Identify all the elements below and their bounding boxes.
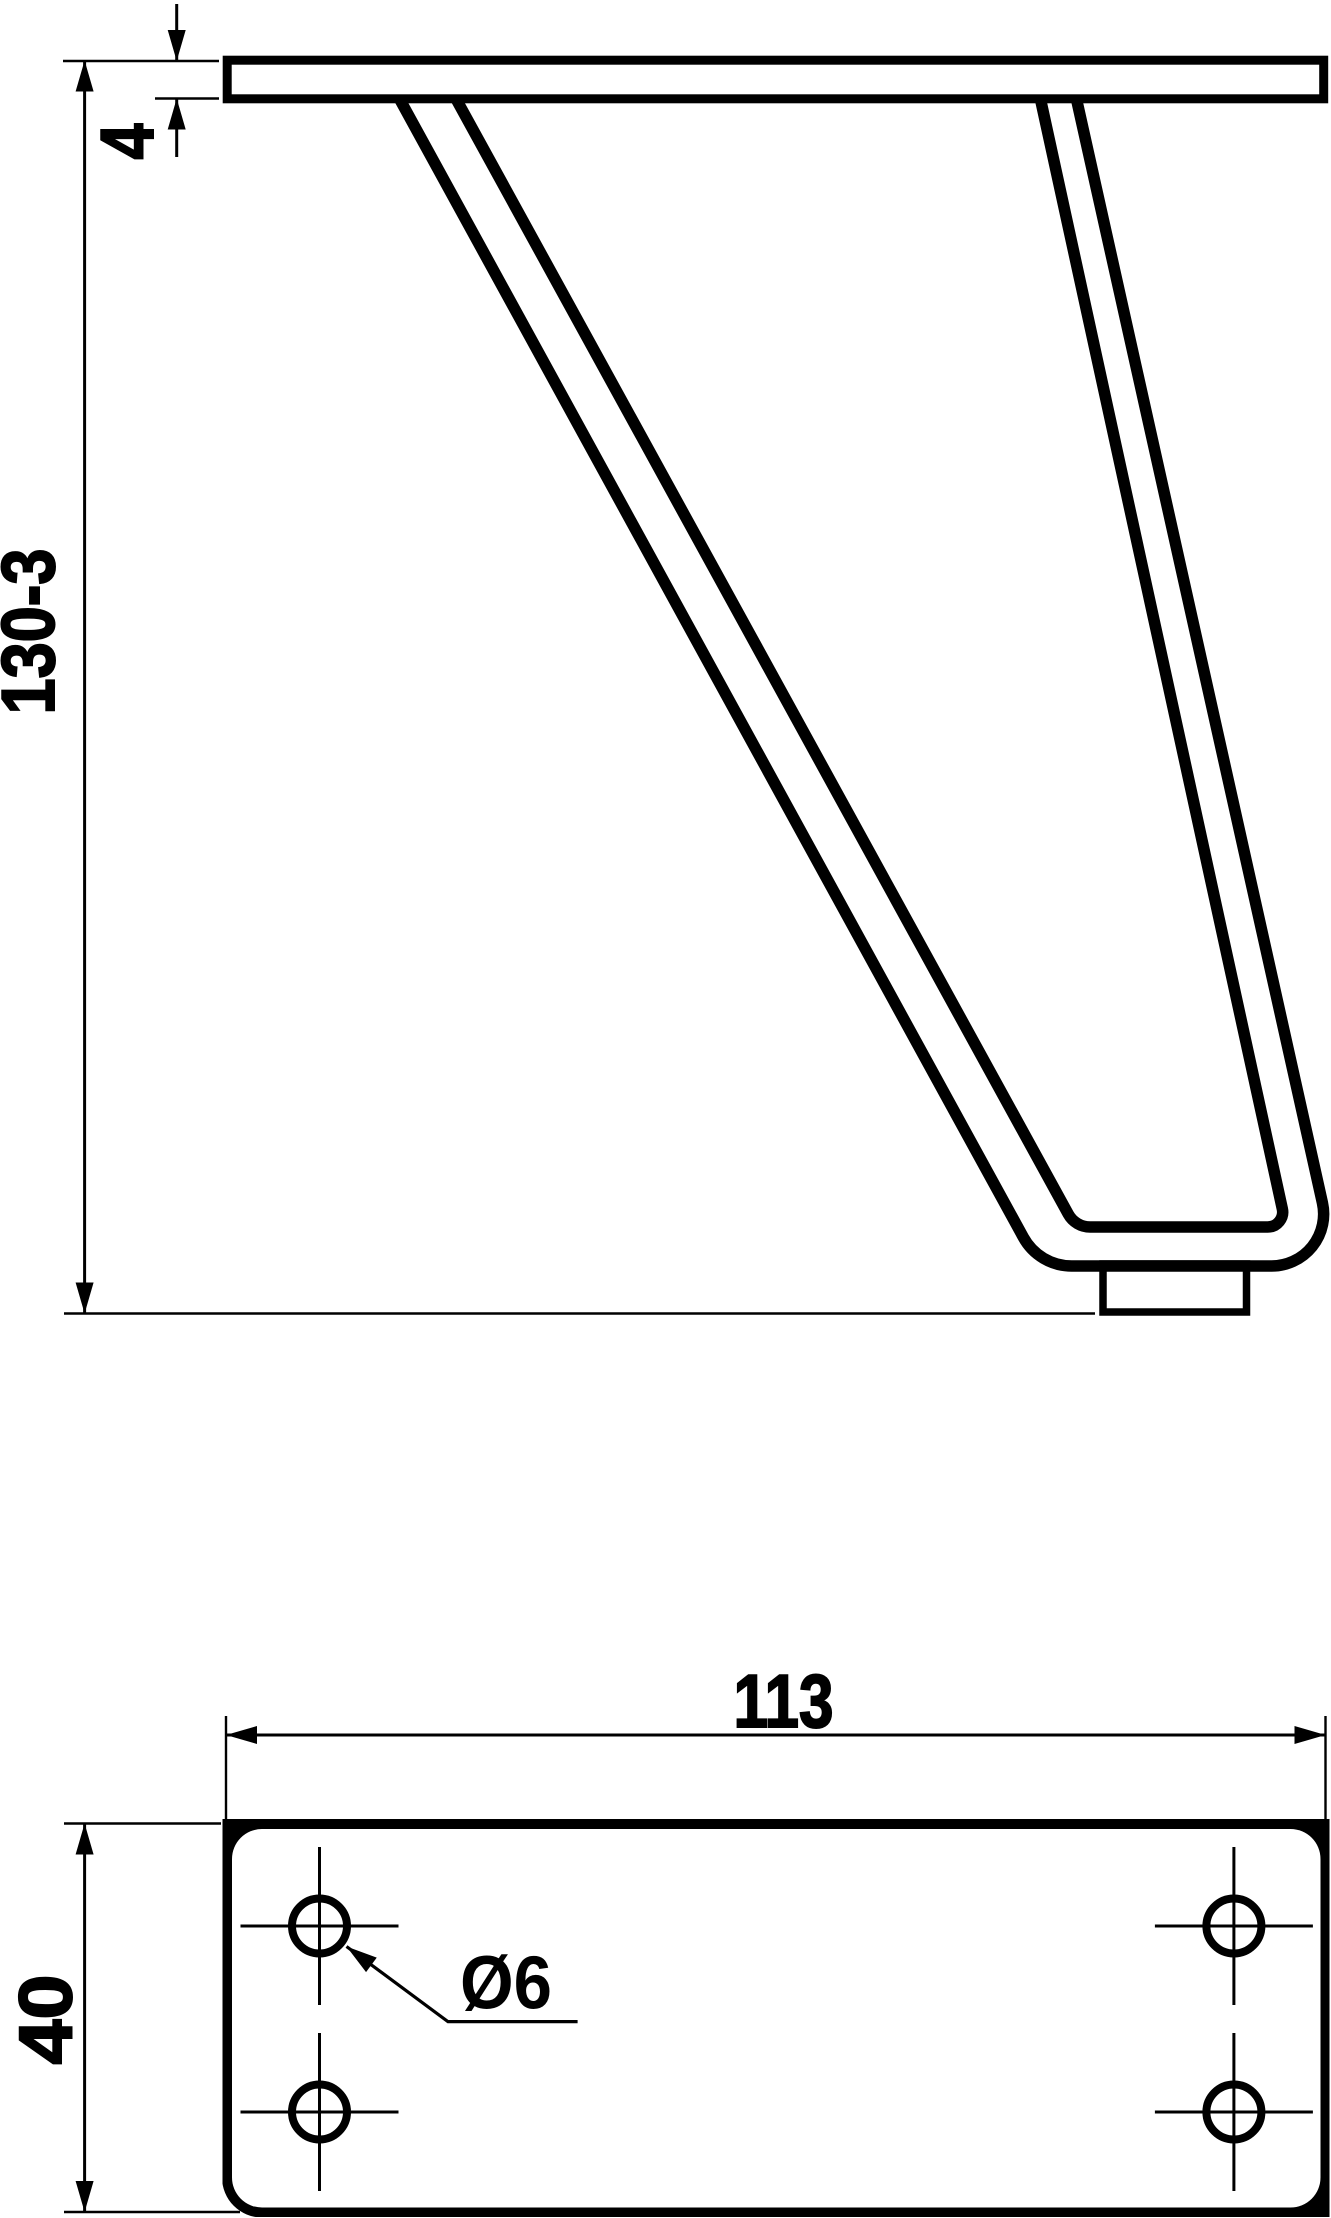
svg-text:130-3: 130-3 (0, 549, 70, 715)
svg-text:40: 40 (4, 1975, 88, 2065)
svg-text:Ø6: Ø6 (460, 1941, 552, 2025)
svg-text:113: 113 (734, 1659, 834, 1743)
svg-text:4: 4 (85, 123, 169, 159)
